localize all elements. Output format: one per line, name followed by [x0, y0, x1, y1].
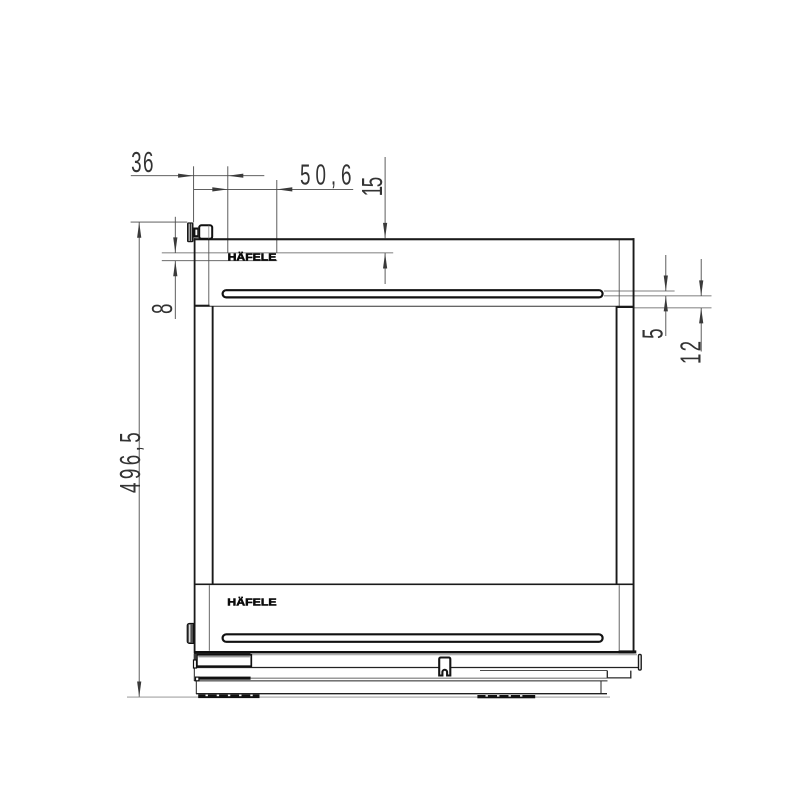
svg-text:496,5: 496,5: [115, 432, 147, 493]
svg-text:HÄFELE: HÄFELE: [227, 595, 277, 608]
svg-text:HÄFELE: HÄFELE: [228, 250, 277, 263]
svg-text:50,6: 50,6: [300, 160, 351, 192]
svg-text:15: 15: [357, 177, 389, 196]
svg-text:5: 5: [638, 328, 670, 338]
svg-text:8: 8: [147, 304, 179, 314]
